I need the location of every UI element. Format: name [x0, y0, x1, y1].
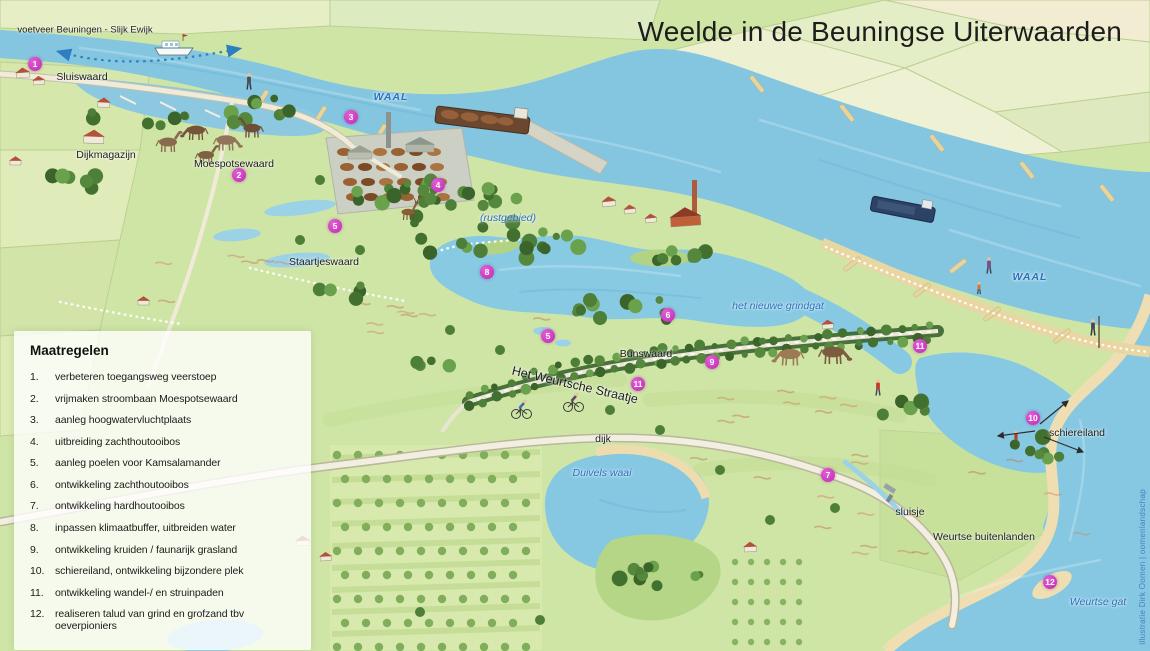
legend-item: 5.aanleg poelen voor Kamsalamander: [30, 457, 296, 469]
legend-item: 3.aanleg hoogwatervluchtplaats: [30, 414, 296, 426]
map-marker: 6: [661, 308, 675, 322]
map-marker: 8: [480, 265, 494, 279]
legend-item-number: 4.: [30, 436, 55, 448]
legend-item-number: 7.: [30, 500, 55, 512]
map-label: WAAL: [1013, 271, 1048, 283]
map-marker: 7: [821, 468, 835, 482]
map-label: voetveer Beuningen - Slijk Ewijk: [17, 25, 152, 36]
legend-item: 9.ontwikkeling kruiden / faunarijk grasl…: [30, 544, 296, 556]
legend-item-number: 5.: [30, 457, 55, 469]
legend-item-number: 8.: [30, 522, 55, 534]
legend-item-number: 9.: [30, 544, 55, 556]
map-marker: 5: [328, 219, 342, 233]
map-label: het nieuwe grindgat: [732, 300, 824, 312]
legend-item-text: ontwikkeling zachthoutooibos: [55, 479, 296, 491]
legend-item-number: 2.: [30, 393, 55, 405]
map-marker: 11: [913, 339, 927, 353]
map-marker: 10: [1026, 411, 1040, 425]
legend-item-number: 12.: [30, 608, 55, 632]
map-label: sluisje: [895, 506, 924, 518]
legend-item-text: ontwikkeling hardhoutooibos: [55, 500, 296, 512]
legend-item-number: 1.: [30, 371, 55, 383]
map-label: Weurtse buitenlanden: [933, 531, 1035, 543]
legend-item: 6.ontwikkeling zachthoutooibos: [30, 479, 296, 491]
legend-panel: Maatregelen 1.verbeteren toegangsweg vee…: [14, 331, 311, 650]
map-label: Staartjeswaard: [289, 256, 359, 268]
map-label: Dijkmagazijn: [76, 149, 136, 161]
poster: Weelde in de Beuningse Uiterwaarden Maat…: [0, 0, 1150, 651]
legend-item: 1.verbeteren toegangsweg veerstoep: [30, 371, 296, 383]
legend-item-text: verbeteren toegangsweg veerstoep: [55, 371, 296, 383]
map-marker: 3: [344, 110, 358, 124]
legend-item-text: schiereiland, ontwikkeling bijzondere pl…: [55, 565, 296, 577]
map-marker: 1: [28, 57, 42, 71]
map-marker: 11: [631, 377, 645, 391]
map-label: schiereiland: [1049, 427, 1105, 439]
legend-title: Maatregelen: [30, 343, 296, 358]
legend-item-text: realiseren talud van grind en grofzand t…: [55, 608, 296, 632]
legend-item: 11.ontwikkeling wandel-/ en struinpaden: [30, 587, 296, 599]
legend-item: 7.ontwikkeling hardhoutooibos: [30, 500, 296, 512]
map-label: Sluiswaard: [56, 71, 107, 83]
legend-item-number: 10.: [30, 565, 55, 577]
legend-item-number: 6.: [30, 479, 55, 491]
legend-item-number: 11.: [30, 587, 55, 599]
legend-item-text: aanleg poelen voor Kamsalamander: [55, 457, 296, 469]
legend-item-text: vrijmaken stroombaan Moespotsewaard: [55, 393, 296, 405]
legend-item-text: aanleg hoogwatervluchtplaats: [55, 414, 296, 426]
legend-item-text: uitbreiding zachthoutooibos: [55, 436, 296, 448]
map-label: Weurtse gat: [1070, 596, 1126, 608]
page-title: Weelde in de Beuningse Uiterwaarden: [638, 16, 1122, 48]
legend-list: 1.verbeteren toegangsweg veerstoep2.vrij…: [30, 371, 296, 632]
map-label: Moespotsewaard: [194, 158, 274, 170]
legend-item-number: 3.: [30, 414, 55, 426]
legend-item: 8.inpassen klimaatbuffer, uitbreiden wat…: [30, 522, 296, 534]
legend-item-text: inpassen klimaatbuffer, uitbreiden water: [55, 522, 296, 534]
map-label: WAAL: [374, 91, 409, 103]
legend-item-text: ontwikkeling kruiden / faunarijk graslan…: [55, 544, 296, 556]
map-marker: 12: [1043, 575, 1057, 589]
legend-item: 10.schiereiland, ontwikkeling bijzondere…: [30, 565, 296, 577]
map-marker: 9: [705, 355, 719, 369]
map-label: dijk: [595, 433, 611, 445]
map-marker: 2: [232, 168, 246, 182]
legend-item: 4.uitbreiding zachthoutooibos: [30, 436, 296, 448]
legend-item-text: ontwikkeling wandel-/ en struinpaden: [55, 587, 296, 599]
map-label: Duivels waai: [573, 467, 632, 479]
legend-item: 12.realiseren talud van grind en grofzan…: [30, 608, 296, 632]
map-label: Bunswaard: [620, 348, 673, 360]
map-label: (rustgebied): [480, 212, 536, 224]
credit-note: illustratie Dirk Oomen | oomenlandschap: [1138, 489, 1147, 645]
legend-item: 2.vrijmaken stroombaan Moespotsewaard: [30, 393, 296, 405]
map-marker: 4: [431, 178, 445, 192]
map-marker: 5: [541, 329, 555, 343]
